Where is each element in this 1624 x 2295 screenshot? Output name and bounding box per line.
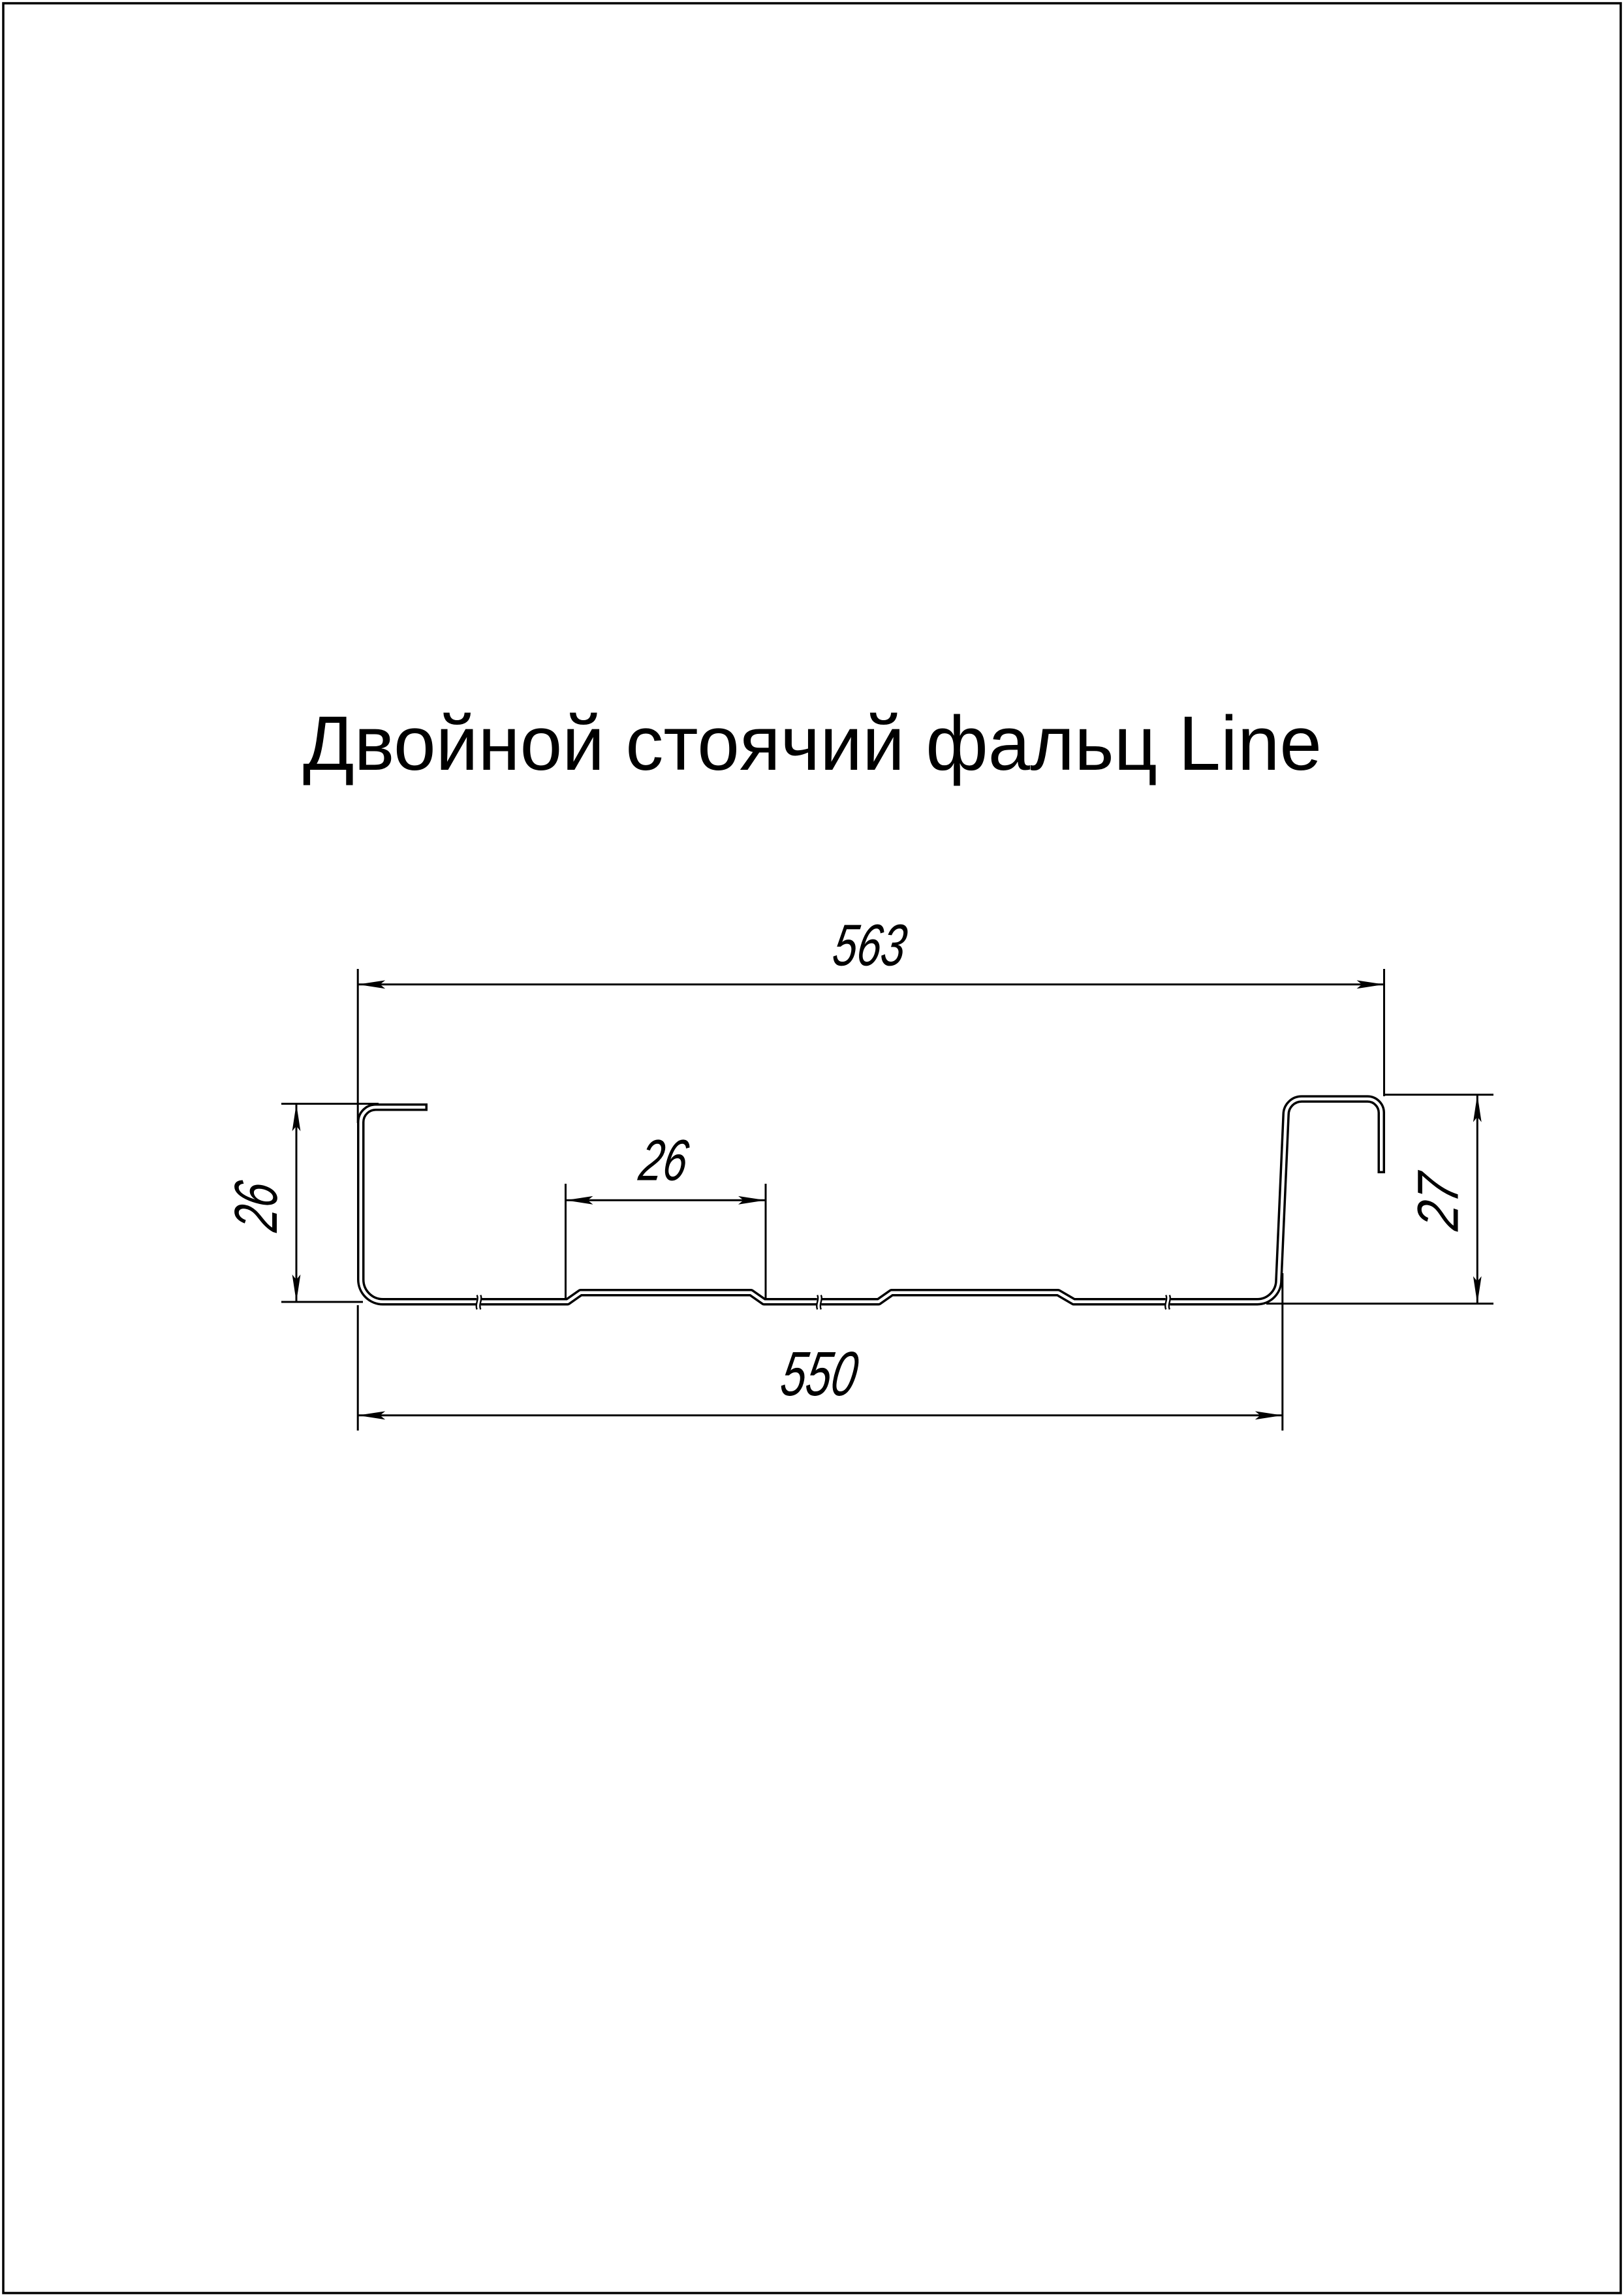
svg-text:Двойной стоячий фальц Line: Двойной стоячий фальц Line — [303, 701, 1322, 787]
svg-text:550: 550 — [777, 1338, 863, 1408]
svg-text:563: 563 — [829, 912, 911, 978]
